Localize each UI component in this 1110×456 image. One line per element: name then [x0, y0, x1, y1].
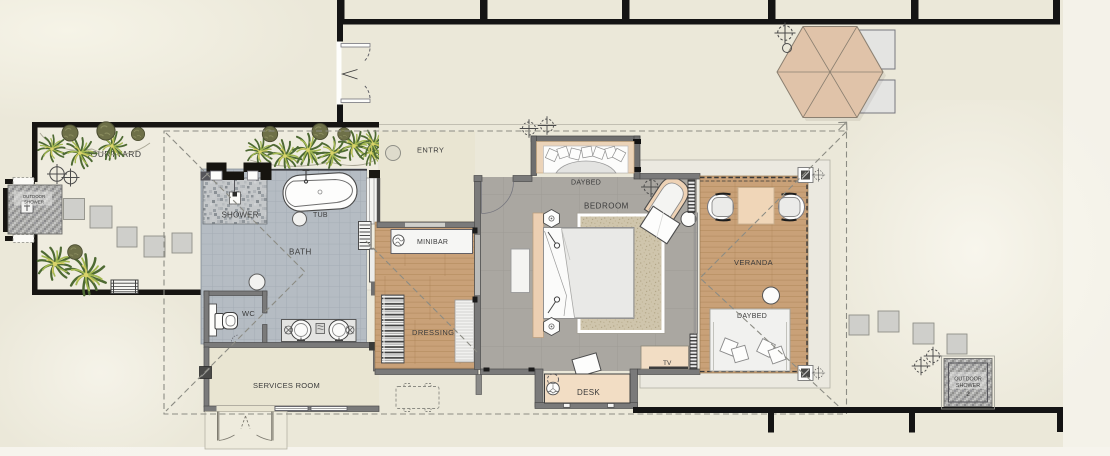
svg-text:WC: WC — [242, 309, 255, 318]
svg-text:TV: TV — [663, 360, 672, 367]
svg-text:SHOWER: SHOWER — [24, 200, 44, 205]
svg-text:VERANDA: VERANDA — [734, 258, 773, 267]
svg-text:OUTDOOR: OUTDOOR — [954, 377, 982, 383]
svg-text:SHOWER: SHOWER — [956, 383, 980, 389]
svg-text:ENTRY: ENTRY — [417, 146, 444, 155]
svg-text:DAYBED: DAYBED — [571, 180, 601, 187]
svg-text:SHOWER: SHOWER — [222, 211, 259, 220]
svg-text:BEDROOM: BEDROOM — [584, 202, 629, 211]
svg-text:TUB: TUB — [313, 212, 328, 219]
svg-text:DAYBED: DAYBED — [737, 313, 767, 320]
svg-text:DESK: DESK — [577, 388, 600, 397]
svg-text:SERVICES ROOM: SERVICES ROOM — [253, 381, 320, 390]
svg-text:OUTDOOR: OUTDOOR — [23, 194, 45, 199]
svg-text:MINIBAR: MINIBAR — [417, 239, 448, 246]
svg-text:BATH: BATH — [289, 248, 312, 257]
svg-text:DRESSING: DRESSING — [412, 328, 454, 337]
